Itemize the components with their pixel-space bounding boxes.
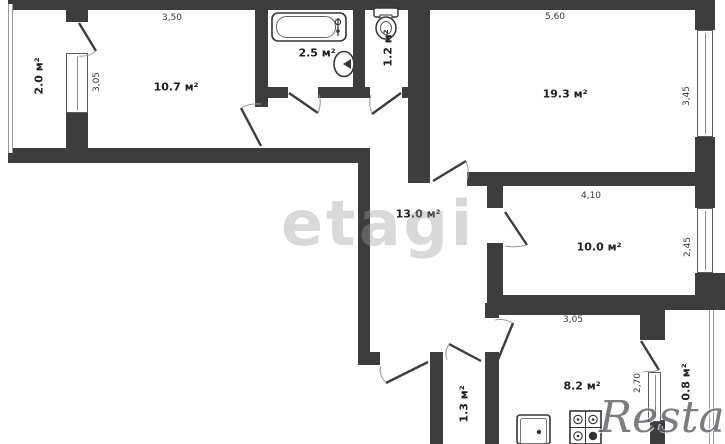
wall	[66, 10, 88, 22]
room-area-room-10-7: 10.7 м²	[154, 81, 199, 94]
dimension-label: 5,60	[545, 12, 565, 22]
dimension-label: 3,50	[162, 13, 182, 23]
room-area-bedroom: 10.0 м²	[577, 241, 622, 254]
room-area-living: 19.3 м²	[543, 88, 588, 101]
wall	[467, 172, 695, 186]
dimension-label: 3,05	[92, 72, 102, 92]
wall	[695, 137, 715, 208]
balcony-window	[709, 310, 714, 444]
room-area-wc: 1.2 м²	[382, 29, 395, 66]
kitchen-sink-icon	[517, 415, 550, 444]
wall	[695, 0, 715, 30]
door-wc	[372, 93, 401, 114]
door-entrance	[386, 362, 428, 383]
window	[66, 53, 88, 113]
room-area-kitchen: 8.2 м²	[563, 380, 600, 393]
door-kitchen-balcony	[641, 341, 659, 370]
door-balcony-left	[79, 23, 96, 51]
wall	[8, 148, 370, 163]
wall	[485, 352, 499, 444]
door-bathroom	[289, 93, 318, 113]
wall	[487, 186, 503, 208]
door-room-10-7	[241, 108, 261, 146]
door-bedroom	[505, 212, 527, 245]
wall	[695, 273, 725, 310]
watermark-etagi: etagi	[281, 193, 475, 255]
dimension-label: 3,05	[563, 315, 583, 325]
wall	[8, 0, 715, 10]
floor-plan: 2.0 м² 10.7 м² 2.5 м² 1.2 м² 19.3 м² 13.…	[0, 0, 725, 444]
wall	[408, 10, 430, 183]
door-living	[433, 161, 466, 181]
stove-icon	[570, 411, 601, 444]
room-area-balcony-right: 0.8 м²	[680, 363, 693, 400]
window	[697, 30, 713, 137]
room-area-closet: 1.3 м²	[458, 385, 471, 422]
wall	[353, 10, 365, 87]
wall	[66, 113, 88, 149]
room-area-bathroom: 2.5 м²	[298, 47, 335, 60]
door-kitchen	[497, 323, 513, 362]
wall	[640, 315, 665, 340]
wall	[485, 303, 499, 318]
wall	[650, 420, 665, 444]
bathtub-icon	[272, 13, 346, 41]
sink-icon	[334, 52, 354, 77]
dimension-label: 4,10	[581, 191, 601, 201]
balcony-window	[8, 4, 13, 153]
door-hall-kitchen	[449, 344, 481, 361]
wall	[358, 153, 370, 365]
dimension-label: 2,45	[683, 237, 693, 257]
wall	[487, 243, 503, 295]
wall	[430, 352, 443, 444]
room-area-hallway: 13.0 м²	[396, 208, 441, 221]
dimension-label: 2,70	[633, 373, 643, 393]
room-area-balcony-left: 2.0 м²	[33, 57, 46, 94]
wall	[358, 352, 380, 365]
window	[697, 208, 713, 273]
balcony-door-window	[648, 372, 661, 422]
wall	[318, 87, 370, 98]
dimension-label: 3,45	[682, 86, 692, 106]
wall	[485, 303, 665, 315]
wall	[255, 87, 288, 98]
